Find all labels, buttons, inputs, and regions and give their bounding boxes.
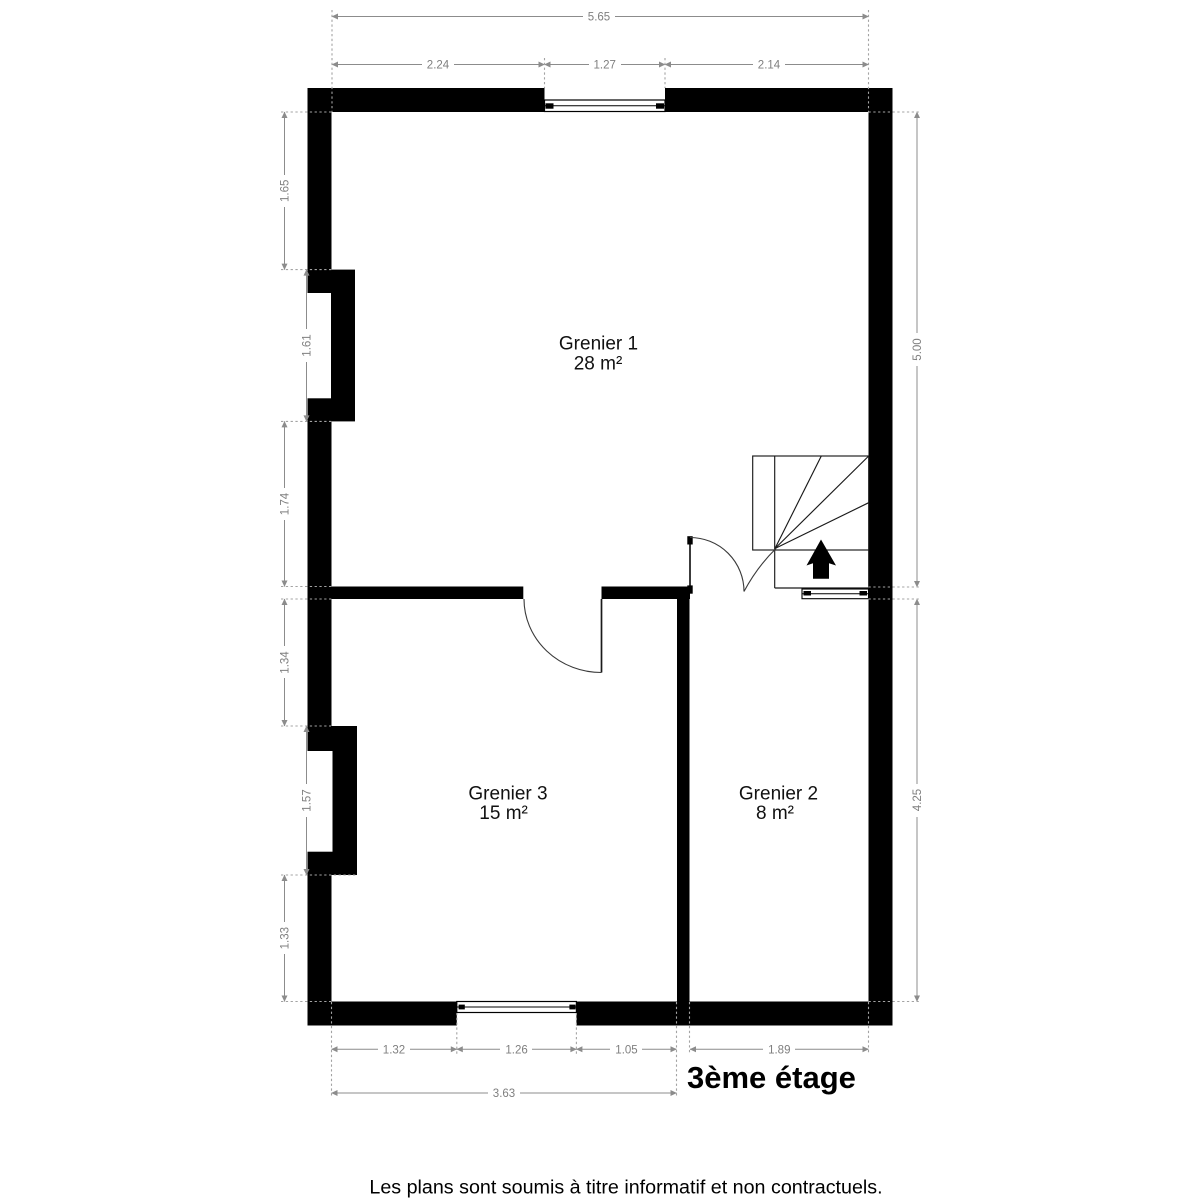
svg-text:5.65: 5.65 [588, 12, 610, 24]
svg-text:1.89: 1.89 [768, 1045, 790, 1057]
svg-text:1.26: 1.26 [505, 1045, 527, 1057]
svg-text:1.05: 1.05 [615, 1045, 637, 1057]
svg-text:1.61: 1.61 [302, 334, 314, 356]
svg-text:1.27: 1.27 [594, 60, 616, 72]
svg-text:Grenier 1: Grenier 1 [559, 333, 638, 354]
svg-text:Grenier 2: Grenier 2 [739, 784, 818, 805]
svg-text:Grenier 3: Grenier 3 [468, 784, 547, 805]
svg-text:1.65: 1.65 [280, 180, 292, 202]
svg-text:2.14: 2.14 [758, 60, 781, 72]
svg-text:Les plans sont soumis à titre: Les plans sont soumis à titre informatif… [369, 1176, 882, 1198]
svg-text:1.34: 1.34 [280, 651, 292, 674]
svg-text:1.74: 1.74 [280, 492, 292, 515]
svg-text:1.33: 1.33 [280, 927, 292, 949]
svg-text:3ème étage: 3ème étage [687, 1060, 856, 1095]
svg-text:1.32: 1.32 [383, 1045, 405, 1057]
svg-text:5.00: 5.00 [912, 338, 924, 360]
svg-text:28 m²: 28 m² [574, 354, 623, 375]
svg-text:8 m²: 8 m² [756, 803, 794, 824]
svg-text:15 m²: 15 m² [479, 803, 528, 824]
svg-text:3.63: 3.63 [493, 1088, 515, 1100]
svg-text:2.24: 2.24 [427, 60, 450, 72]
svg-text:4.25: 4.25 [912, 789, 924, 811]
svg-text:1.57: 1.57 [302, 789, 314, 811]
